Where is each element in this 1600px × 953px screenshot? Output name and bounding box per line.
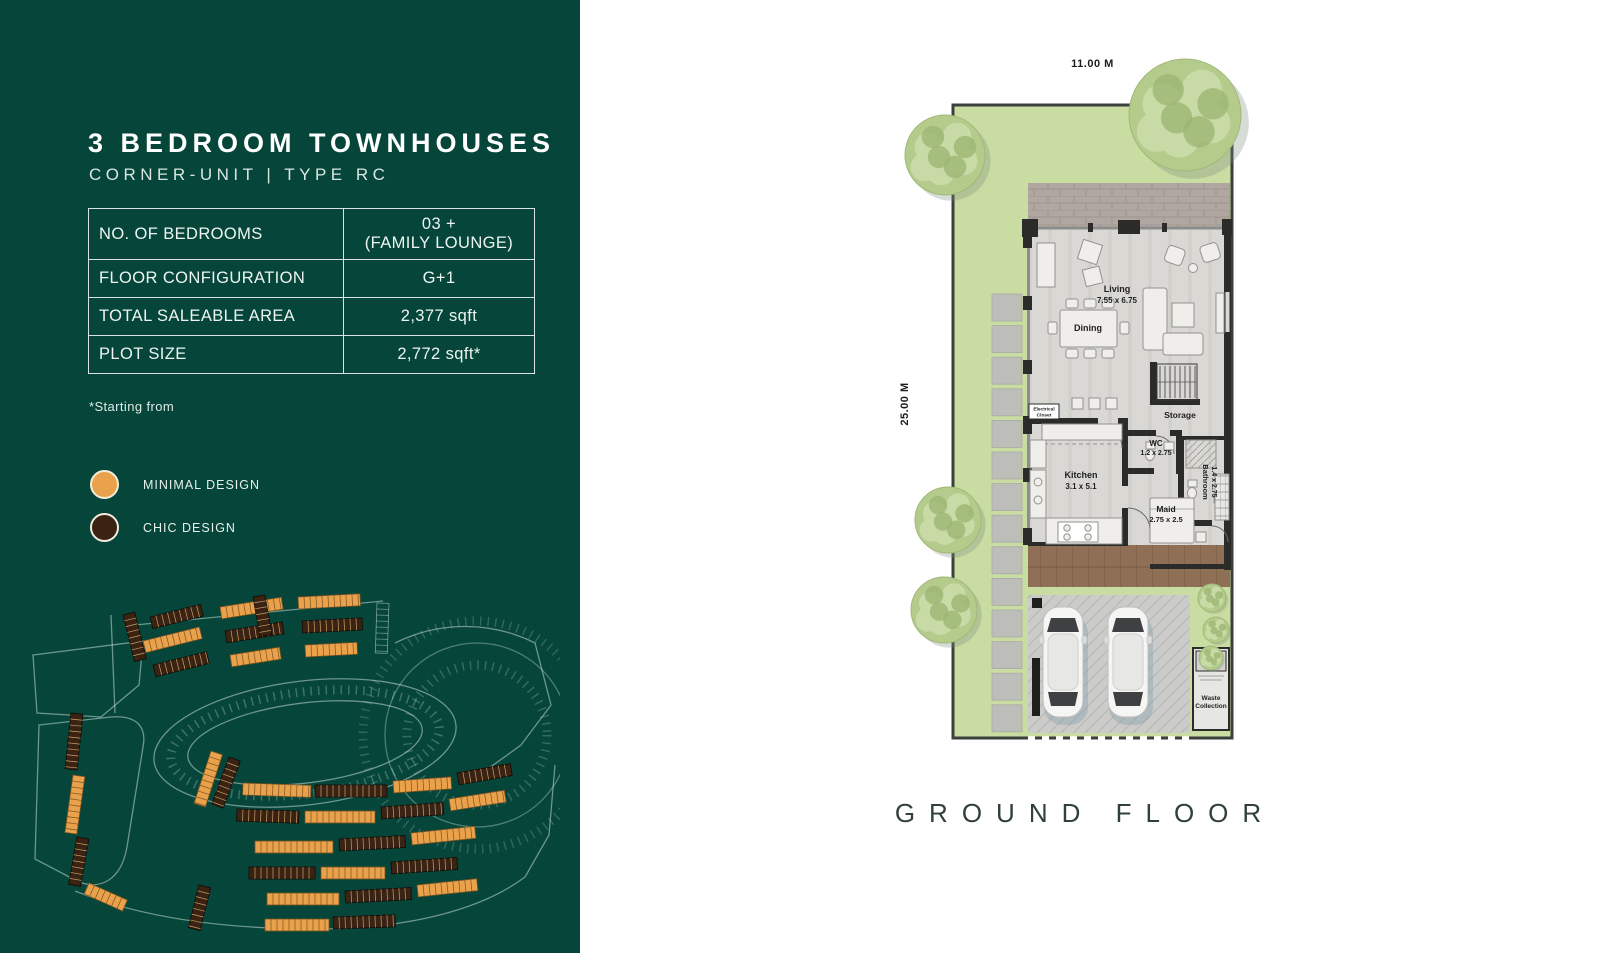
- spec-label: TOTAL SALEABLE AREA: [89, 298, 344, 336]
- table-row: TOTAL SALEABLE AREA 2,377 sqft: [89, 298, 535, 336]
- minimal-design-swatch: [90, 470, 119, 499]
- legend-item-chic: CHIC DESIGN: [90, 513, 236, 542]
- spec-table: NO. OF BEDROOMS 03 + (FAMILY LOUNGE) FLO…: [88, 208, 535, 374]
- page-title: 3 BEDROOM TOWNHOUSES: [88, 128, 555, 159]
- svg-text:1.4 x 2.75: 1.4 x 2.75: [1210, 466, 1217, 497]
- house-floor: [1028, 228, 1230, 545]
- svg-text:Kitchen: Kitchen: [1064, 470, 1097, 480]
- spec-value: 03 + (FAMILY LOUNGE): [344, 209, 535, 260]
- svg-text:Storage: Storage: [1164, 410, 1196, 420]
- legend-item-minimal: MINIMAL DESIGN: [90, 470, 260, 499]
- svg-text:Dining: Dining: [1074, 323, 1102, 333]
- svg-text:1.2 x 2.75: 1.2 x 2.75: [1140, 450, 1171, 457]
- site-map: [15, 585, 560, 947]
- svg-text:3.1 x 5.1: 3.1 x 5.1: [1065, 482, 1097, 491]
- svg-text:Bathroom: Bathroom: [1201, 464, 1210, 500]
- svg-text:Collection: Collection: [1195, 703, 1226, 710]
- spec-value: 2,772 sqft*: [344, 336, 535, 374]
- info-panel: 3 BEDROOM TOWNHOUSES CORNER-UNIT | TYPE …: [0, 0, 580, 953]
- svg-text:Closet: Closet: [1037, 413, 1052, 419]
- svg-text:7.55 x 6.75: 7.55 x 6.75: [1097, 296, 1138, 305]
- page-subtitle: CORNER-UNIT | TYPE RC: [89, 165, 389, 185]
- spec-label: NO. OF BEDROOMS: [89, 209, 344, 260]
- table-row: NO. OF BEDROOMS 03 + (FAMILY LOUNGE): [89, 209, 535, 260]
- svg-text:WC: WC: [1149, 439, 1163, 448]
- svg-text:2.75 x 2.5: 2.75 x 2.5: [1149, 515, 1182, 524]
- brochure-page: 3 BEDROOM TOWNHOUSES CORNER-UNIT | TYPE …: [0, 0, 1600, 953]
- legend-label: CHIC DESIGN: [143, 521, 236, 535]
- svg-text:Electrical: Electrical: [1033, 407, 1054, 413]
- spec-label: FLOOR CONFIGURATION: [89, 260, 344, 298]
- svg-text:Living: Living: [1104, 284, 1131, 294]
- spec-label: PLOT SIZE: [89, 336, 344, 374]
- floor-caption: GROUND FLOOR: [580, 798, 1590, 829]
- table-row: PLOT SIZE 2,772 sqft*: [89, 336, 535, 374]
- footnote: *Starting from: [89, 399, 174, 414]
- svg-text:Maid: Maid: [1156, 504, 1175, 514]
- chic-design-swatch: [90, 513, 119, 542]
- legend-label: MINIMAL DESIGN: [143, 478, 260, 492]
- svg-text:Waste: Waste: [1202, 695, 1221, 702]
- spec-value: 2,377 sqft: [344, 298, 535, 336]
- spec-value: G+1: [344, 260, 535, 298]
- table-row: FLOOR CONFIGURATION G+1: [89, 260, 535, 298]
